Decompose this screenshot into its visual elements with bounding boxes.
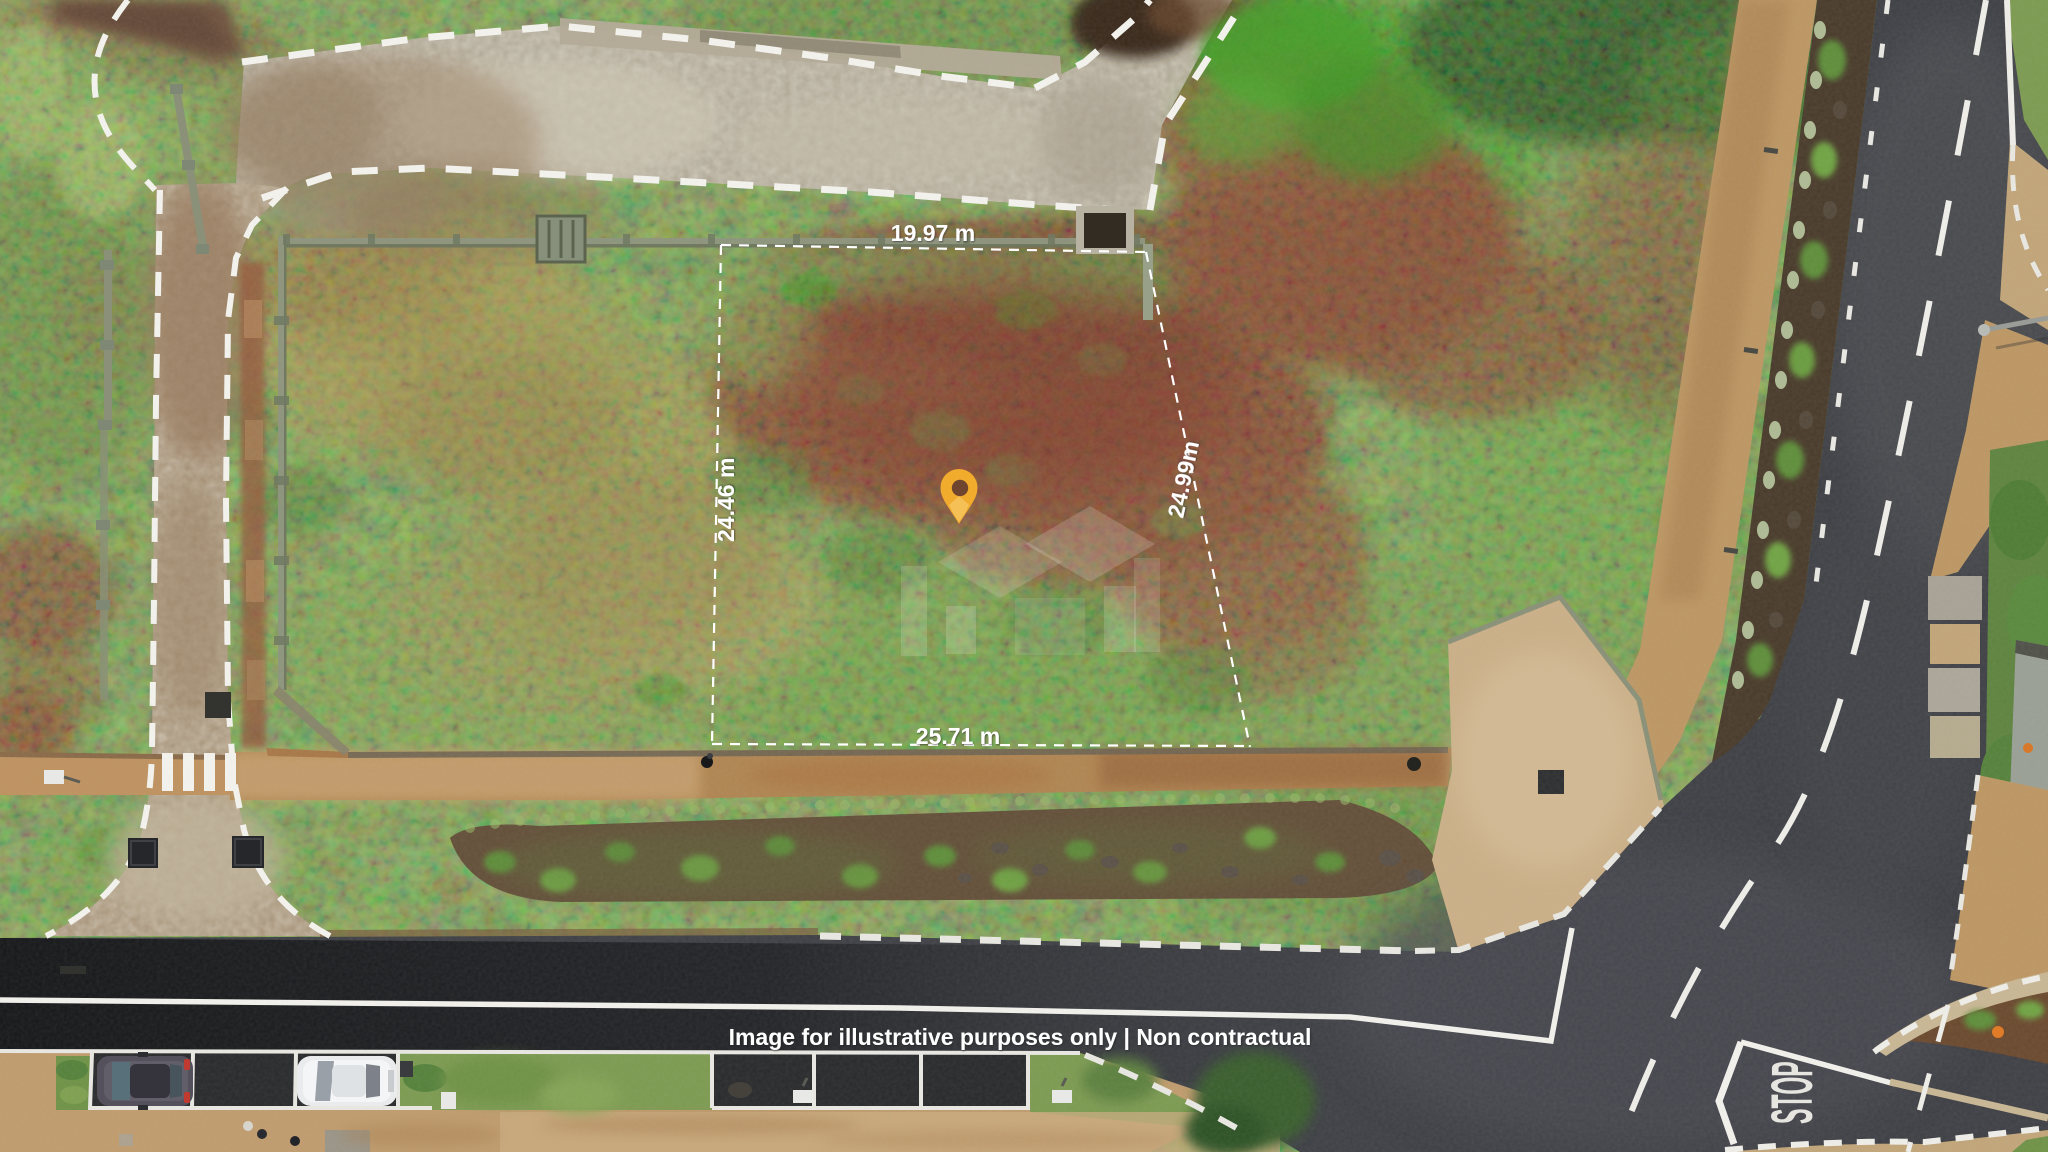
- svg-text:24.46 m: 24.46 m: [713, 458, 739, 542]
- svg-text:Image for illustrative purpose: Image for illustrative purposes only | N…: [729, 1024, 1312, 1050]
- svg-text:19.97 m: 19.97 m: [891, 220, 975, 246]
- svg-text:25.71 m: 25.71 m: [916, 723, 1000, 749]
